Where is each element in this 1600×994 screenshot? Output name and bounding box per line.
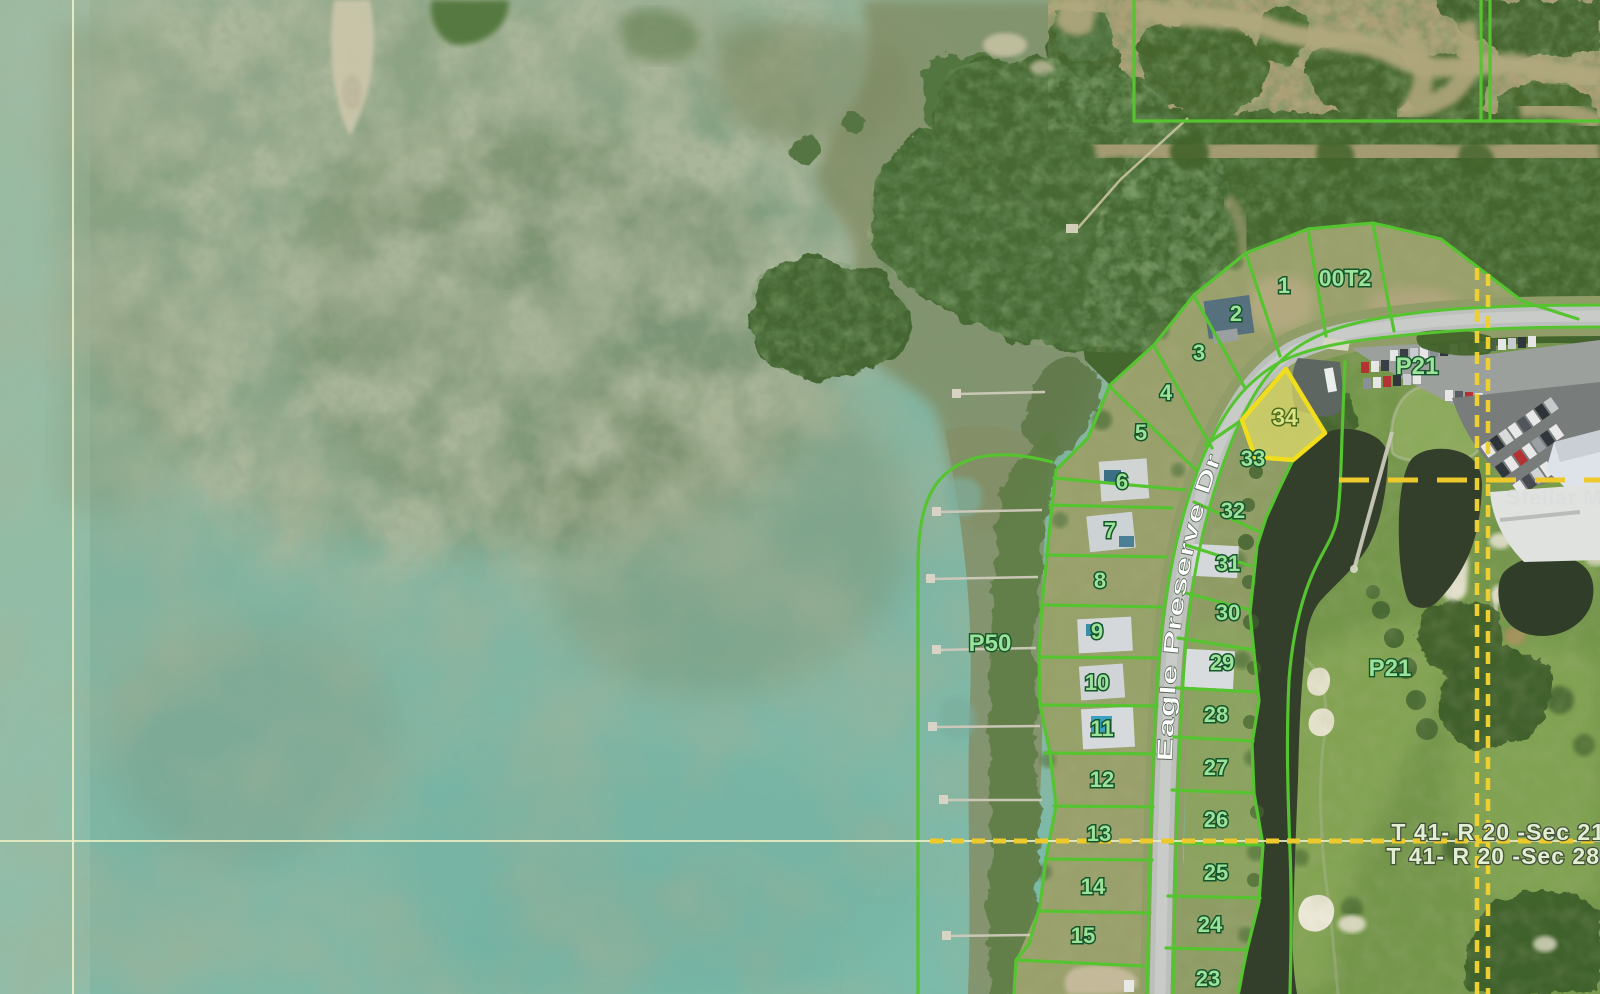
svg-text:24: 24 <box>1198 912 1223 937</box>
svg-text:P21: P21 <box>1369 655 1412 682</box>
svg-text:5: 5 <box>1135 420 1147 445</box>
svg-text:9: 9 <box>1091 619 1103 644</box>
svg-text:7: 7 <box>1104 518 1116 543</box>
svg-text:32: 32 <box>1221 498 1245 523</box>
svg-text:2: 2 <box>1230 301 1242 326</box>
svg-text:26: 26 <box>1204 807 1228 832</box>
svg-text:P50: P50 <box>969 630 1012 657</box>
svg-text:29: 29 <box>1210 650 1234 675</box>
svg-text:8: 8 <box>1094 568 1106 593</box>
svg-text:P21: P21 <box>1396 353 1439 380</box>
svg-text:23: 23 <box>1196 966 1220 991</box>
svg-text:15: 15 <box>1071 923 1095 948</box>
svg-text:1: 1 <box>1278 273 1290 298</box>
svg-text:33: 33 <box>1241 446 1265 471</box>
svg-text:00T2: 00T2 <box>1319 265 1371 291</box>
svg-text:11: 11 <box>1090 716 1113 741</box>
svg-text:Stellar MLS: Stellar MLS <box>1506 485 1600 510</box>
svg-text:12: 12 <box>1090 767 1114 792</box>
svg-text:13: 13 <box>1087 821 1111 846</box>
svg-text:6: 6 <box>1116 469 1128 494</box>
svg-text:31: 31 <box>1216 551 1240 576</box>
svg-text:4: 4 <box>1160 380 1173 405</box>
svg-text:25: 25 <box>1204 860 1228 885</box>
svg-text:T 41- R 20 -Sec 21: T 41- R 20 -Sec 21 <box>1391 819 1600 845</box>
svg-text:30: 30 <box>1216 600 1240 625</box>
svg-text:T 41- R 20 -Sec 28: T 41- R 20 -Sec 28 <box>1386 843 1600 869</box>
svg-text:34: 34 <box>1272 404 1298 430</box>
svg-text:3: 3 <box>1193 340 1205 365</box>
svg-text:10: 10 <box>1085 670 1109 695</box>
svg-text:28: 28 <box>1204 702 1228 727</box>
svg-text:27: 27 <box>1204 755 1228 780</box>
svg-text:14: 14 <box>1081 874 1106 899</box>
